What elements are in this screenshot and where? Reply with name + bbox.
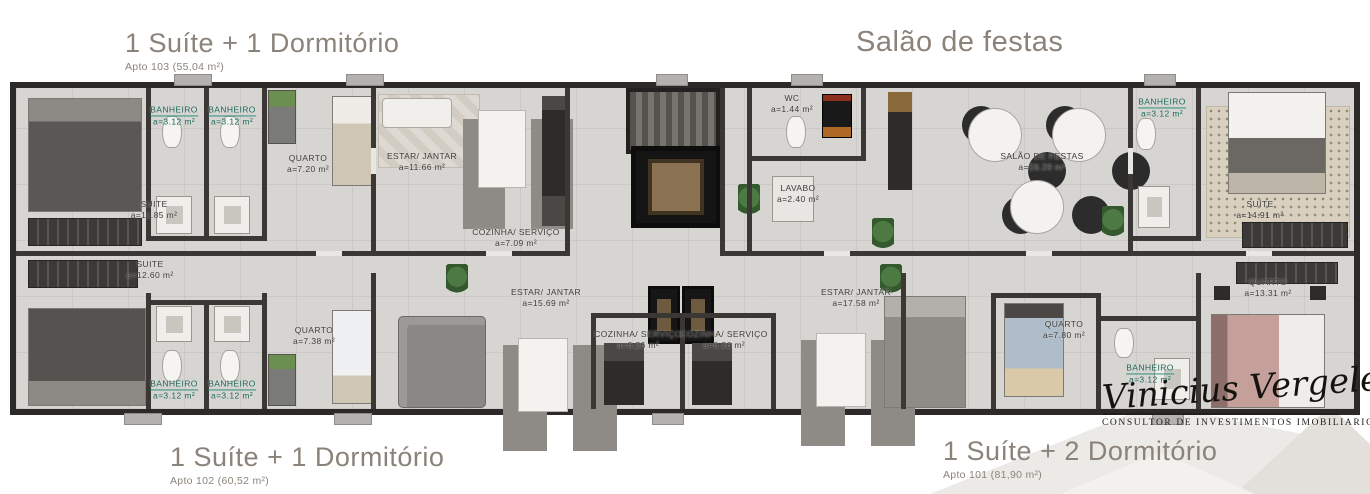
door-opening (1246, 251, 1272, 256)
bar-counter-graphic (888, 92, 912, 190)
balcony-tab (124, 413, 162, 425)
room-label: ESTAR/ JANTARa=15.69 m² (511, 287, 581, 309)
room-area: a=14.91 m² (1236, 210, 1283, 221)
room-label: SUITEa=11.85 m² (131, 199, 178, 221)
room-label: BANHEIROa=3.12 m² (208, 378, 256, 401)
room-name: BANHEIRO (1138, 96, 1186, 108)
room-label: WCa=1.44 m² (771, 93, 813, 115)
room-name: SALÃO DE FESTAS (1000, 151, 1083, 162)
dining-table-graphic (518, 338, 568, 412)
room-name: SUÍTE (1236, 199, 1283, 210)
toilet-graphic (786, 116, 806, 148)
toilet-graphic (220, 350, 240, 382)
shower-graphic (156, 306, 192, 342)
room-area: a=7.20 m² (287, 164, 329, 175)
room-area: a=15.69 m² (511, 298, 581, 309)
apartment-subtitle: Apto 103 (55,04 m²) (125, 61, 399, 73)
nightstand-graphic (1214, 286, 1230, 300)
room-area: a=3.12 m² (208, 117, 256, 128)
room-name: WC (771, 93, 813, 104)
kitchen-appliances-graphic (604, 343, 644, 405)
apartment-subtitle: Apto 101 (81,90 m²) (943, 469, 1217, 481)
room-area: a=11.66 m² (387, 162, 457, 173)
room-label: COZINHA/ SERVIÇOa=7.09 m² (472, 227, 559, 249)
bed-graphic (28, 98, 142, 212)
room-name: QUARTO (1043, 319, 1085, 330)
wall (1101, 316, 1201, 321)
wall (771, 313, 776, 409)
room-name: BANHEIRO (208, 378, 256, 390)
sofa-graphic (382, 98, 452, 128)
dining-table-graphic (478, 110, 526, 188)
wall (262, 88, 267, 238)
apartment-title: 1 Suíte + 1 Dormitório (170, 442, 444, 473)
stairs-graphic (626, 88, 720, 154)
room-area: a=7.80 m² (1043, 330, 1085, 341)
room-area: a=13.31 m² (1244, 288, 1291, 299)
plant-icon (446, 264, 468, 296)
balcony-tab (652, 413, 684, 425)
wall (991, 293, 996, 409)
room-name: BANHEIRO (150, 378, 198, 390)
wall (720, 88, 725, 256)
dining-table-graphic (816, 333, 866, 407)
round-table-graphic (1010, 180, 1064, 234)
room-name: QUARTO (293, 325, 335, 336)
balcony-tab (791, 74, 823, 86)
title-apto-101: 1 Suíte + 2 Dormitório Apto 101 (81,90 m… (943, 436, 1217, 481)
room-label: BANHEIROa=3.12 m² (150, 378, 198, 401)
title-apto-102: 1 Suíte + 1 Dormitório Apto 102 (60,52 m… (170, 442, 444, 487)
room-name: LAVABO (777, 183, 819, 194)
balcony-tab (346, 74, 384, 86)
room-label: BANHEIROa=3.12 m² (150, 104, 198, 127)
room-area: a=3.12 m² (208, 391, 256, 402)
room-area: a=6.26 m² (680, 340, 767, 351)
door-opening (371, 148, 376, 174)
plant-icon (872, 218, 894, 252)
room-area: a=2.40 m² (777, 194, 819, 205)
section-title: Salão de festas (856, 26, 1063, 59)
signature-block: Vinicius Vergeletti CONSULTOR DE INVESTI… (1102, 373, 1338, 428)
wardrobe-graphic (28, 260, 138, 288)
sofa-graphic (398, 316, 486, 408)
room-name: ESTAR/ JANTAR (511, 287, 581, 298)
shower-graphic (1138, 186, 1170, 228)
nightstand-graphic (1310, 286, 1326, 300)
toilet-graphic (1114, 328, 1134, 358)
room-label: COZINHA/ SERVIÇOa=6.26 m² (680, 329, 767, 351)
wall (1096, 293, 1101, 409)
balcony-tab (174, 74, 212, 86)
wall (680, 313, 685, 409)
wall (16, 251, 565, 256)
room-name: BANHEIRO (150, 104, 198, 116)
room-name: QUARTO (1244, 277, 1291, 288)
balcony-tab (656, 74, 688, 86)
room-label: LAVABOa=2.40 m² (777, 183, 819, 205)
room-area: a=17.58 m² (821, 298, 891, 309)
room-area: a=7.09 m² (472, 238, 559, 249)
balcony-tab (1144, 74, 1176, 86)
floor-plan: SUITEa=11.85 m²BANHEIROa=3.12 m²BANHEIRO… (10, 82, 1360, 415)
wall (901, 273, 906, 409)
title-salao-de-festas: Salão de festas (856, 26, 1063, 59)
decor-shelf-graphic (822, 94, 852, 138)
cabinet-graphic (268, 90, 296, 144)
kitchen-appliances-graphic (692, 343, 732, 405)
room-area: a=3.12 m² (1138, 109, 1186, 120)
room-name: BANHEIRO (208, 104, 256, 116)
wall (1196, 88, 1201, 238)
apartment-title: 1 Suíte + 2 Dormitório (943, 436, 1217, 467)
bed-graphic (28, 308, 146, 406)
elevator-graphic (631, 146, 721, 228)
apartment-title: 1 Suíte + 1 Dormitório (125, 28, 399, 59)
room-label: ESTAR/ JANTARa=11.66 m² (387, 151, 457, 173)
wall (146, 236, 267, 241)
wall (591, 313, 596, 409)
room-name: SUITE (131, 199, 178, 210)
room-area: a=1.44 m² (771, 104, 813, 115)
title-apto-103: 1 Suíte + 1 Dormitório Apto 103 (55,04 m… (125, 28, 399, 73)
room-area: a=3.12 m² (150, 117, 198, 128)
wall (262, 293, 267, 409)
apartment-subtitle: Apto 102 (60,52 m²) (170, 475, 444, 487)
door-opening (316, 251, 342, 256)
wall (991, 293, 1101, 298)
room-name: ESTAR/ JANTAR (387, 151, 457, 162)
room-label: QUARTOa=7.38 m² (293, 325, 335, 347)
shower-graphic (214, 196, 250, 234)
bed-graphic (332, 96, 372, 186)
room-label: SALÃO DE FESTASa=28.29 m² (1000, 151, 1083, 173)
room-name: COZINHA/ SERVIÇO (594, 329, 681, 340)
bed-graphic (332, 310, 372, 404)
room-name: COZINHA/ SERVIÇO (472, 227, 559, 238)
room-area: a=6.26 m² (594, 340, 681, 351)
room-label: SUITEa=12.60 m² (126, 259, 173, 281)
bed-graphic (1004, 303, 1064, 397)
wall (146, 300, 267, 305)
room-name: ESTAR/ JANTAR (821, 287, 891, 298)
wall (371, 273, 376, 409)
wardrobe-graphic (28, 218, 142, 246)
wardrobe-graphic (1242, 222, 1348, 248)
plant-icon (1102, 206, 1124, 240)
wall (861, 88, 866, 158)
wall (747, 156, 866, 161)
shower-graphic (214, 306, 250, 342)
wall (747, 88, 752, 256)
bed-graphic (1228, 92, 1326, 194)
room-label: BANHEIROa=3.12 m² (1138, 96, 1186, 119)
room-area: a=28.29 m² (1000, 162, 1083, 173)
cabinet-graphic (268, 354, 296, 406)
room-name: COZINHA/ SERVIÇO (680, 329, 767, 340)
room-name: SUITE (126, 259, 173, 270)
wall (565, 88, 570, 256)
bed-graphic (884, 296, 966, 408)
room-label: QUARTOa=7.80 m² (1043, 319, 1085, 341)
room-area: a=7.38 m² (293, 336, 335, 347)
room-name: QUARTO (287, 153, 329, 164)
kitchen-counter-graphic (542, 96, 566, 226)
wall (591, 313, 776, 318)
wall (1128, 236, 1201, 241)
door-opening (824, 251, 850, 256)
door-opening (1128, 148, 1133, 174)
room-area: a=11.85 m² (131, 210, 178, 221)
toilet-graphic (1136, 118, 1156, 150)
room-area: a=12.60 m² (126, 270, 173, 281)
signature-text: Vinicius Vergeletti (1101, 365, 1339, 415)
door-opening (486, 251, 512, 256)
toilet-graphic (162, 350, 182, 382)
room-label: QUARTOa=13.31 m² (1244, 277, 1291, 299)
room-label: ESTAR/ JANTARa=17.58 m² (821, 287, 891, 309)
room-label: BANHEIROa=3.12 m² (208, 104, 256, 127)
door-opening (1026, 251, 1052, 256)
balcony-tab (334, 413, 372, 425)
room-label: QUARTOa=7.20 m² (287, 153, 329, 175)
room-label: COZINHA/ SERVIÇOa=6.26 m² (594, 329, 681, 351)
room-area: a=3.12 m² (150, 391, 198, 402)
room-label: SUÍTEa=14.91 m² (1236, 199, 1283, 221)
